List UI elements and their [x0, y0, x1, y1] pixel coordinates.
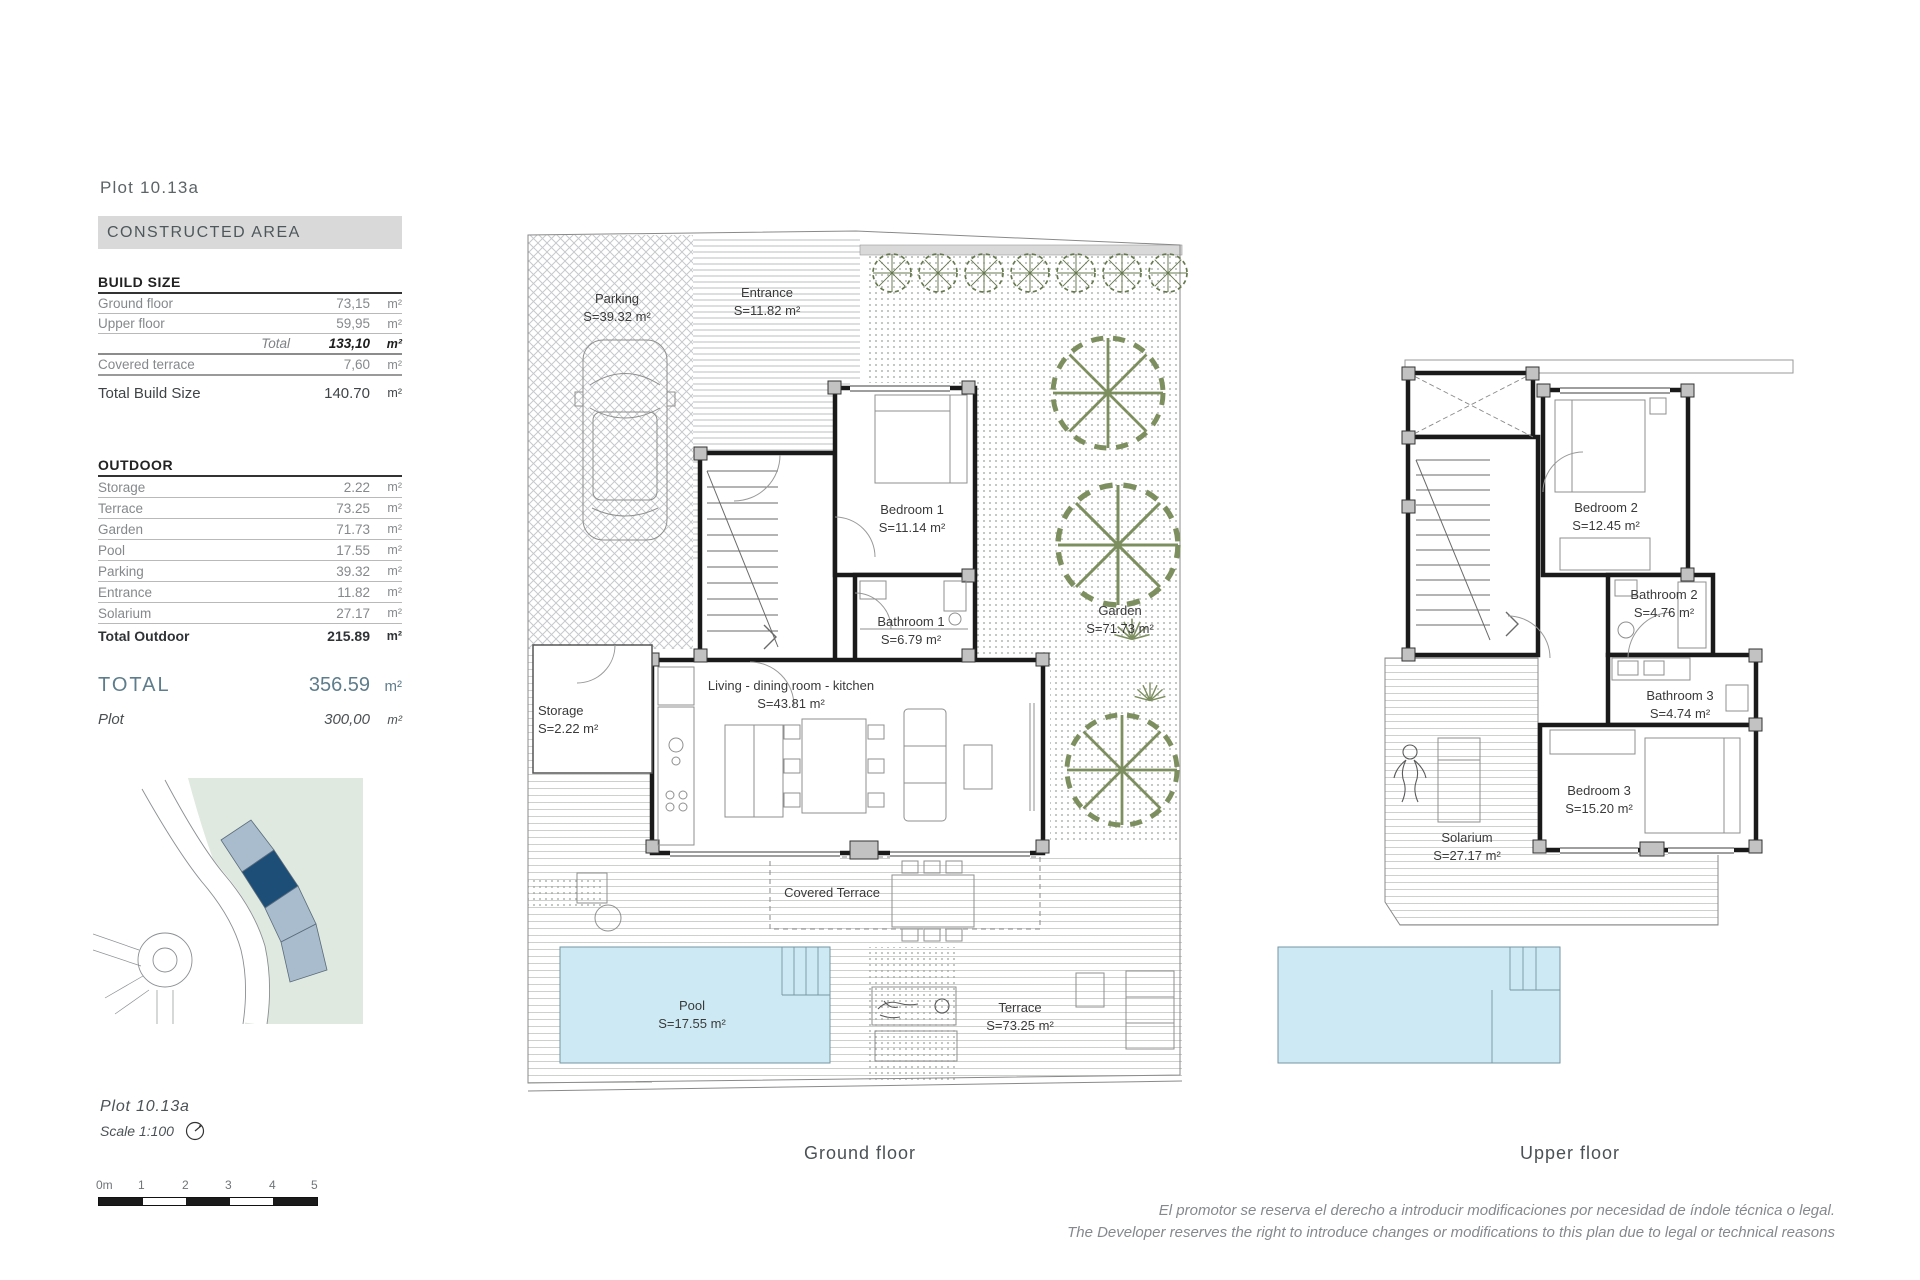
row-value: 7,60: [306, 357, 370, 372]
upper-pool: [1278, 947, 1560, 1063]
scale-text: Scale 1:100: [100, 1123, 174, 1139]
room-label-terrace: Terrace: [998, 1000, 1041, 1015]
row-unit: m²: [370, 501, 402, 515]
grand-total-row: TOTAL 356.59 m²: [98, 674, 402, 697]
scale-tick: 1: [138, 1178, 145, 1192]
row-value: 215.89: [306, 628, 370, 644]
room-label-covered-terrace: Covered Terrace: [784, 885, 880, 900]
room-label-entrance: Entrance: [741, 285, 793, 300]
row-value: 17.55: [306, 543, 370, 558]
scale-block: Plot 10.13a Scale 1:100: [100, 1098, 206, 1142]
table-row: Terrace 73.25 m²: [98, 498, 402, 519]
total-value: 356.59: [286, 674, 370, 697]
row-label: Total Build Size: [98, 385, 306, 402]
scale-tick: 5: [311, 1178, 318, 1192]
total-label: TOTAL: [98, 674, 286, 697]
build-size-header: BUILD SIZE: [98, 271, 402, 294]
row-value: 133,10: [306, 336, 370, 351]
room-area-bedroom-2: S=12.45 m²: [1572, 518, 1640, 533]
room-label-garden: Garden: [1098, 603, 1141, 618]
scale-bar: 0m 1 2 3 4 5: [98, 1178, 316, 1208]
room-area-storage: S=2.22 m²: [538, 721, 599, 736]
room-area-bathroom-3: S=4.74 m²: [1650, 706, 1711, 721]
table-row: Pool 17.55 m²: [98, 540, 402, 561]
row-value: 71.73: [306, 522, 370, 537]
row-unit: m²: [370, 358, 402, 372]
row-value: 73.25: [306, 501, 370, 516]
plot-value: 300,00: [286, 711, 370, 728]
scale-tick: 2: [182, 1178, 189, 1192]
room-label-bedroom-2: Bedroom 2: [1574, 500, 1638, 515]
location-map: [93, 778, 363, 1024]
table-row: Storage 2.22 m²: [98, 477, 402, 498]
ground-floor-caption: Ground floor: [710, 1143, 1010, 1164]
row-label: Covered terrace: [98, 357, 306, 372]
row-unit: m²: [370, 543, 402, 557]
table-row: Upper floor 59,95 m²: [98, 314, 402, 334]
room-area-parking: S=39.32 m²: [583, 309, 651, 324]
row-unit: m²: [370, 480, 402, 494]
room-area-bathroom-2: S=4.76 m²: [1634, 605, 1695, 620]
disclaimer-es: El promotor se reserva el derecho a intr…: [835, 1200, 1835, 1222]
constructed-area-header: CONSTRUCTED AREA: [98, 216, 402, 249]
row-label: Upper floor: [98, 316, 306, 331]
room-area-bathroom-1: S=6.79 m²: [881, 632, 942, 647]
row-label: Pool: [98, 543, 306, 558]
room-label-bedroom-1: Bedroom 1: [880, 502, 944, 517]
scale-tick: 3: [225, 1178, 232, 1192]
row-value: 11.82: [306, 585, 370, 600]
row-unit: m²: [370, 522, 402, 536]
room-label-bathroom-2: Bathroom 2: [1630, 587, 1697, 602]
room-label-pool: Pool: [679, 998, 705, 1013]
table-row: Ground floor 73,15 m²: [98, 294, 402, 314]
row-value: 73,15: [306, 296, 370, 311]
plan-sheet: Plot 10.13a CONSTRUCTED AREA BUILD SIZE …: [0, 0, 1920, 1280]
row-label: Ground floor: [98, 296, 306, 311]
table-row: Garden 71.73 m²: [98, 519, 402, 540]
row-value: 39.32: [306, 564, 370, 579]
room-area-entrance: S=11.82 m²: [734, 303, 801, 318]
row-unit: m²: [370, 629, 402, 643]
row-unit: m²: [370, 386, 402, 400]
row-value: 140.70: [306, 385, 370, 402]
total-outdoor-row: Total Outdoor 215.89 m²: [98, 624, 402, 648]
row-value: 27.17: [306, 606, 370, 621]
row-label: Garden: [98, 522, 306, 537]
outdoor-table: OUTDOOR Storage 2.22 m² Terrace 73.25 m²…: [98, 454, 402, 648]
row-unit: m²: [370, 606, 402, 620]
room-label-solarium: Solarium: [1441, 830, 1492, 845]
room-label-bedroom-3: Bedroom 3: [1567, 783, 1631, 798]
scale-plot-name: Plot 10.13a: [100, 1098, 206, 1116]
row-unit: m²: [370, 585, 402, 599]
row-value: 59,95: [306, 316, 370, 331]
room-area-bedroom-1: S=11.14 m²: [879, 520, 946, 535]
room-area-living: S=43.81 m²: [757, 696, 825, 711]
row-value: 2.22: [306, 480, 370, 495]
row-label: Parking: [98, 564, 306, 579]
room-area-bedroom-3: S=15.20 m²: [1565, 801, 1633, 816]
room-label-bathroom-1: Bathroom 1: [877, 614, 944, 629]
row-unit: m²: [370, 337, 402, 351]
scale-bar-segments: [98, 1197, 318, 1206]
area-tables: BUILD SIZE Ground floor 73,15 m² Upper f…: [98, 271, 402, 728]
scale-tick: 0m: [96, 1178, 113, 1192]
upper-floor-caption: Upper floor: [1420, 1143, 1720, 1164]
room-label-parking: Parking: [595, 291, 639, 306]
disclaimer-en: The Developer reserves the right to intr…: [835, 1222, 1835, 1244]
deck-dotted-patch: [528, 880, 603, 910]
upper-floor-plan: Bedroom 2 S=12.45 m² Bathroom 2 S=4.76 m…: [1260, 340, 1802, 1080]
build-size-total-row: Total 133,10 m²: [98, 334, 402, 355]
plot-label: Plot: [98, 711, 286, 728]
row-label: Total: [98, 336, 306, 351]
row-unit: m²: [370, 317, 402, 331]
scale-tick: 4: [269, 1178, 276, 1192]
legal-disclaimer: El promotor se reserva el derecho a intr…: [835, 1200, 1835, 1244]
page-title: Plot 10.13a: [100, 178, 199, 198]
room-area-terrace: S=73.25 m²: [986, 1018, 1054, 1033]
ground-floor-plan: Parking S=39.32 m² Entrance S=11.82 m² B…: [520, 225, 1188, 1105]
row-label: Terrace: [98, 501, 306, 516]
room-label-storage: Storage: [538, 703, 584, 718]
plot-unit: m²: [370, 713, 402, 727]
room-label-living: Living - dining room - kitchen: [708, 678, 874, 693]
table-row: Covered terrace 7,60 m²: [98, 355, 402, 376]
room-area-solarium: S=27.17 m²: [1433, 848, 1501, 863]
row-label: Total Outdoor: [98, 628, 306, 644]
total-unit: m²: [370, 678, 402, 695]
table-row: Parking 39.32 m²: [98, 561, 402, 582]
row-unit: m²: [370, 297, 402, 311]
room-area-garden: S=71.73 m²: [1086, 621, 1154, 636]
row-label: Entrance: [98, 585, 306, 600]
table-row: Entrance 11.82 m²: [98, 582, 402, 603]
total-build-size-row: Total Build Size 140.70 m²: [98, 376, 402, 410]
row-unit: m²: [370, 564, 402, 578]
table-row: Solarium 27.17 m²: [98, 603, 402, 624]
row-label: Solarium: [98, 606, 306, 621]
row-label: Storage: [98, 480, 306, 495]
plot-size-row: Plot 300,00 m²: [98, 711, 402, 728]
room-label-bathroom-3: Bathroom 3: [1646, 688, 1713, 703]
room-area-pool: S=17.55 m²: [658, 1016, 726, 1031]
north-compass-icon: [184, 1120, 206, 1142]
outdoor-header: OUTDOOR: [98, 454, 402, 477]
boundary-wall: [860, 245, 1182, 255]
